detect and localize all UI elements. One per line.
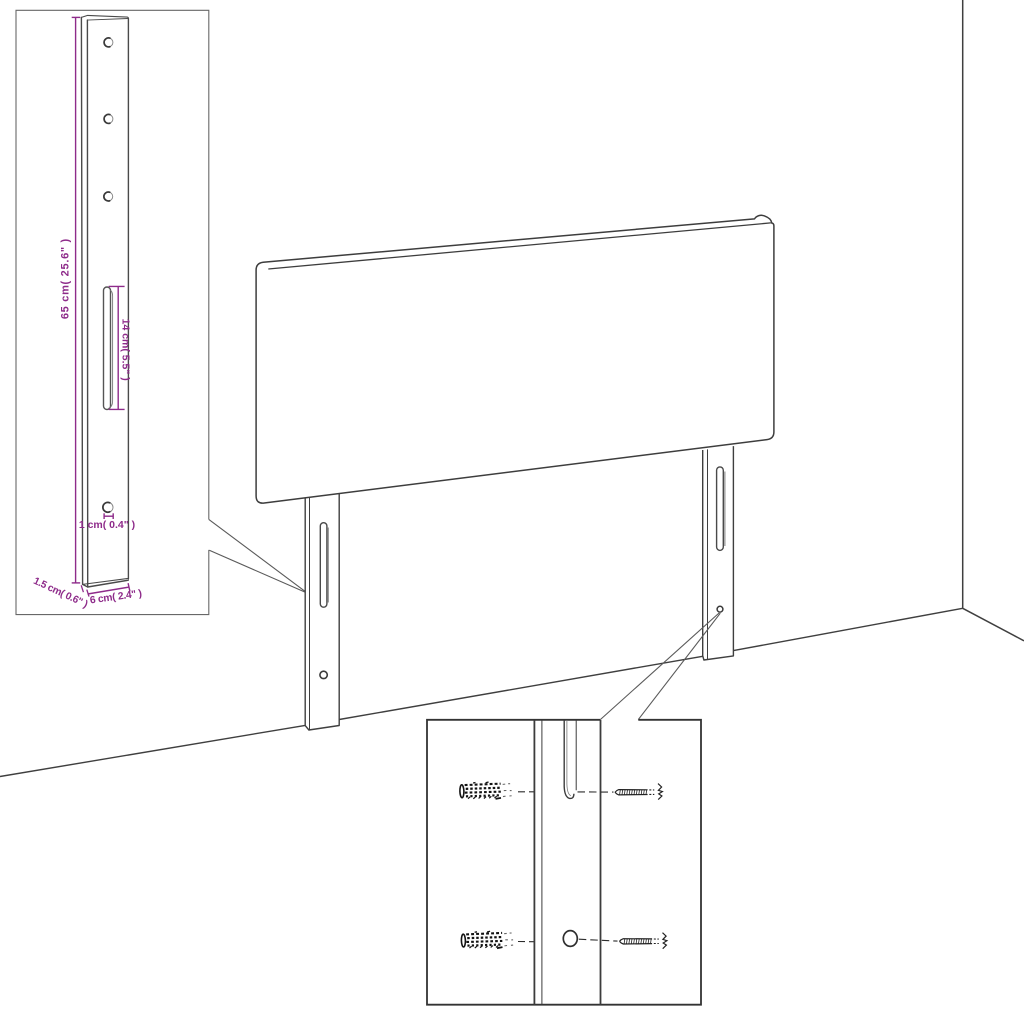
svg-text:14 cm( 5.5" ): 14 cm( 5.5" ) [120, 319, 132, 381]
svg-text:6 cm( 2.4" ): 6 cm( 2.4" ) [89, 588, 142, 606]
svg-text:1 cm( 0.4" ): 1 cm( 0.4" ) [79, 519, 135, 531]
svg-text:65 cm( 25.6" ): 65 cm( 25.6" ) [59, 238, 71, 319]
svg-text:1.5 cm( 0.6" ): 1.5 cm( 0.6" ) [32, 576, 89, 611]
